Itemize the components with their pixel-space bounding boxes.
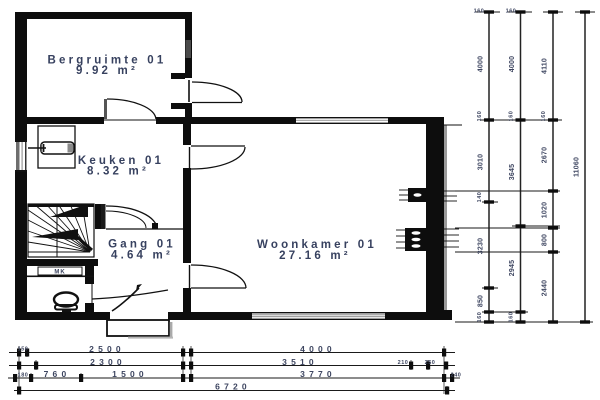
svg-text:240: 240 (451, 373, 462, 379)
svg-text:1500: 1500 (112, 369, 148, 379)
svg-text:4000: 4000 (478, 56, 485, 72)
svg-text:2440: 2440 (542, 280, 549, 296)
svg-text:2500: 2500 (89, 344, 125, 354)
svg-text:160: 160 (474, 9, 485, 15)
svg-text:180: 180 (18, 373, 29, 379)
svg-text:210: 210 (398, 360, 409, 366)
svg-text:250: 250 (425, 360, 436, 366)
svg-text:160: 160 (509, 312, 515, 323)
svg-text:1020: 1020 (542, 202, 549, 218)
svg-text:3230: 3230 (478, 238, 485, 254)
svg-text:2945: 2945 (509, 260, 516, 276)
svg-text:11060: 11060 (574, 157, 581, 177)
svg-text:MK: MK (54, 270, 65, 276)
svg-text:3010: 3010 (478, 154, 485, 170)
svg-text:800: 800 (542, 234, 549, 246)
svg-text:140: 140 (477, 192, 483, 203)
svg-text:3645: 3645 (509, 164, 516, 180)
svg-text:8.32 m²: 8.32 m² (87, 166, 149, 178)
svg-text:9.92 m²: 9.92 m² (76, 65, 138, 77)
svg-text:160: 160 (477, 111, 483, 122)
svg-text:2300: 2300 (90, 357, 126, 367)
svg-text:160: 160 (541, 111, 547, 122)
svg-text:160: 160 (509, 111, 515, 122)
svg-text:850: 850 (478, 295, 485, 307)
svg-text:160: 160 (477, 312, 483, 323)
svg-text:4110: 4110 (542, 58, 549, 74)
svg-text:6720: 6720 (215, 382, 251, 392)
svg-text:160: 160 (506, 9, 517, 15)
svg-text:3510: 3510 (282, 357, 318, 367)
svg-text:4.64 m²: 4.64 m² (111, 250, 173, 262)
svg-text:4000: 4000 (509, 56, 516, 72)
svg-text:4000: 4000 (300, 344, 336, 354)
svg-text:3770: 3770 (300, 369, 336, 379)
svg-text:760: 760 (44, 369, 71, 379)
svg-text:2670: 2670 (542, 147, 549, 163)
svg-text:27.16 m²: 27.16 m² (279, 250, 351, 262)
svg-text:150: 150 (18, 347, 29, 353)
